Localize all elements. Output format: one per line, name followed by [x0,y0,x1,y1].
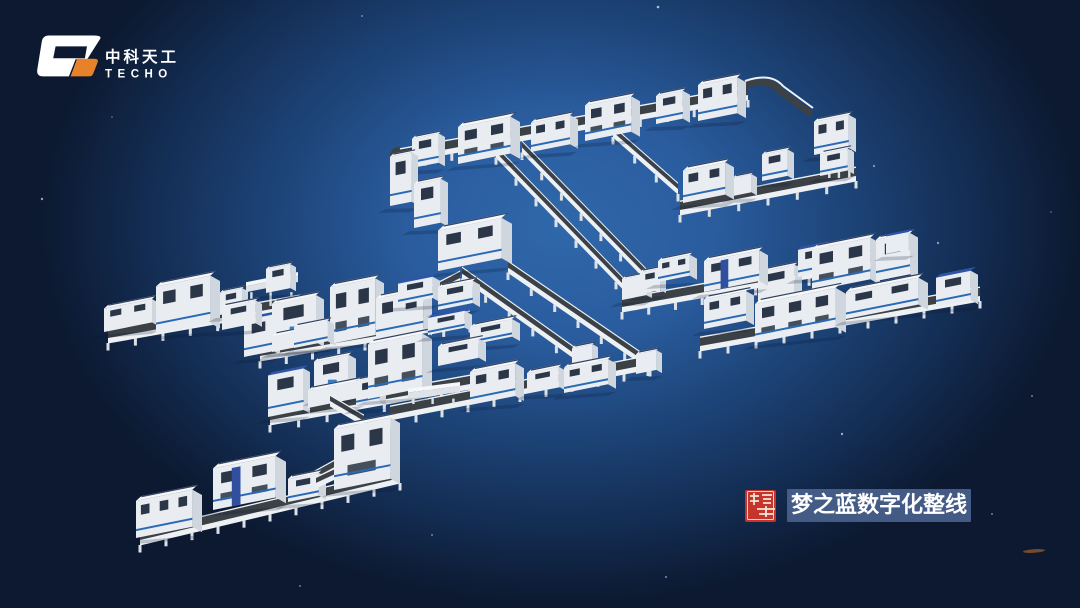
svg-text:梦之蓝数字化整线: 梦之蓝数字化整线 [791,492,967,517]
svg-text:TECHO: TECHO [105,69,173,81]
svg-text:中科天工: 中科天工 [105,47,179,66]
